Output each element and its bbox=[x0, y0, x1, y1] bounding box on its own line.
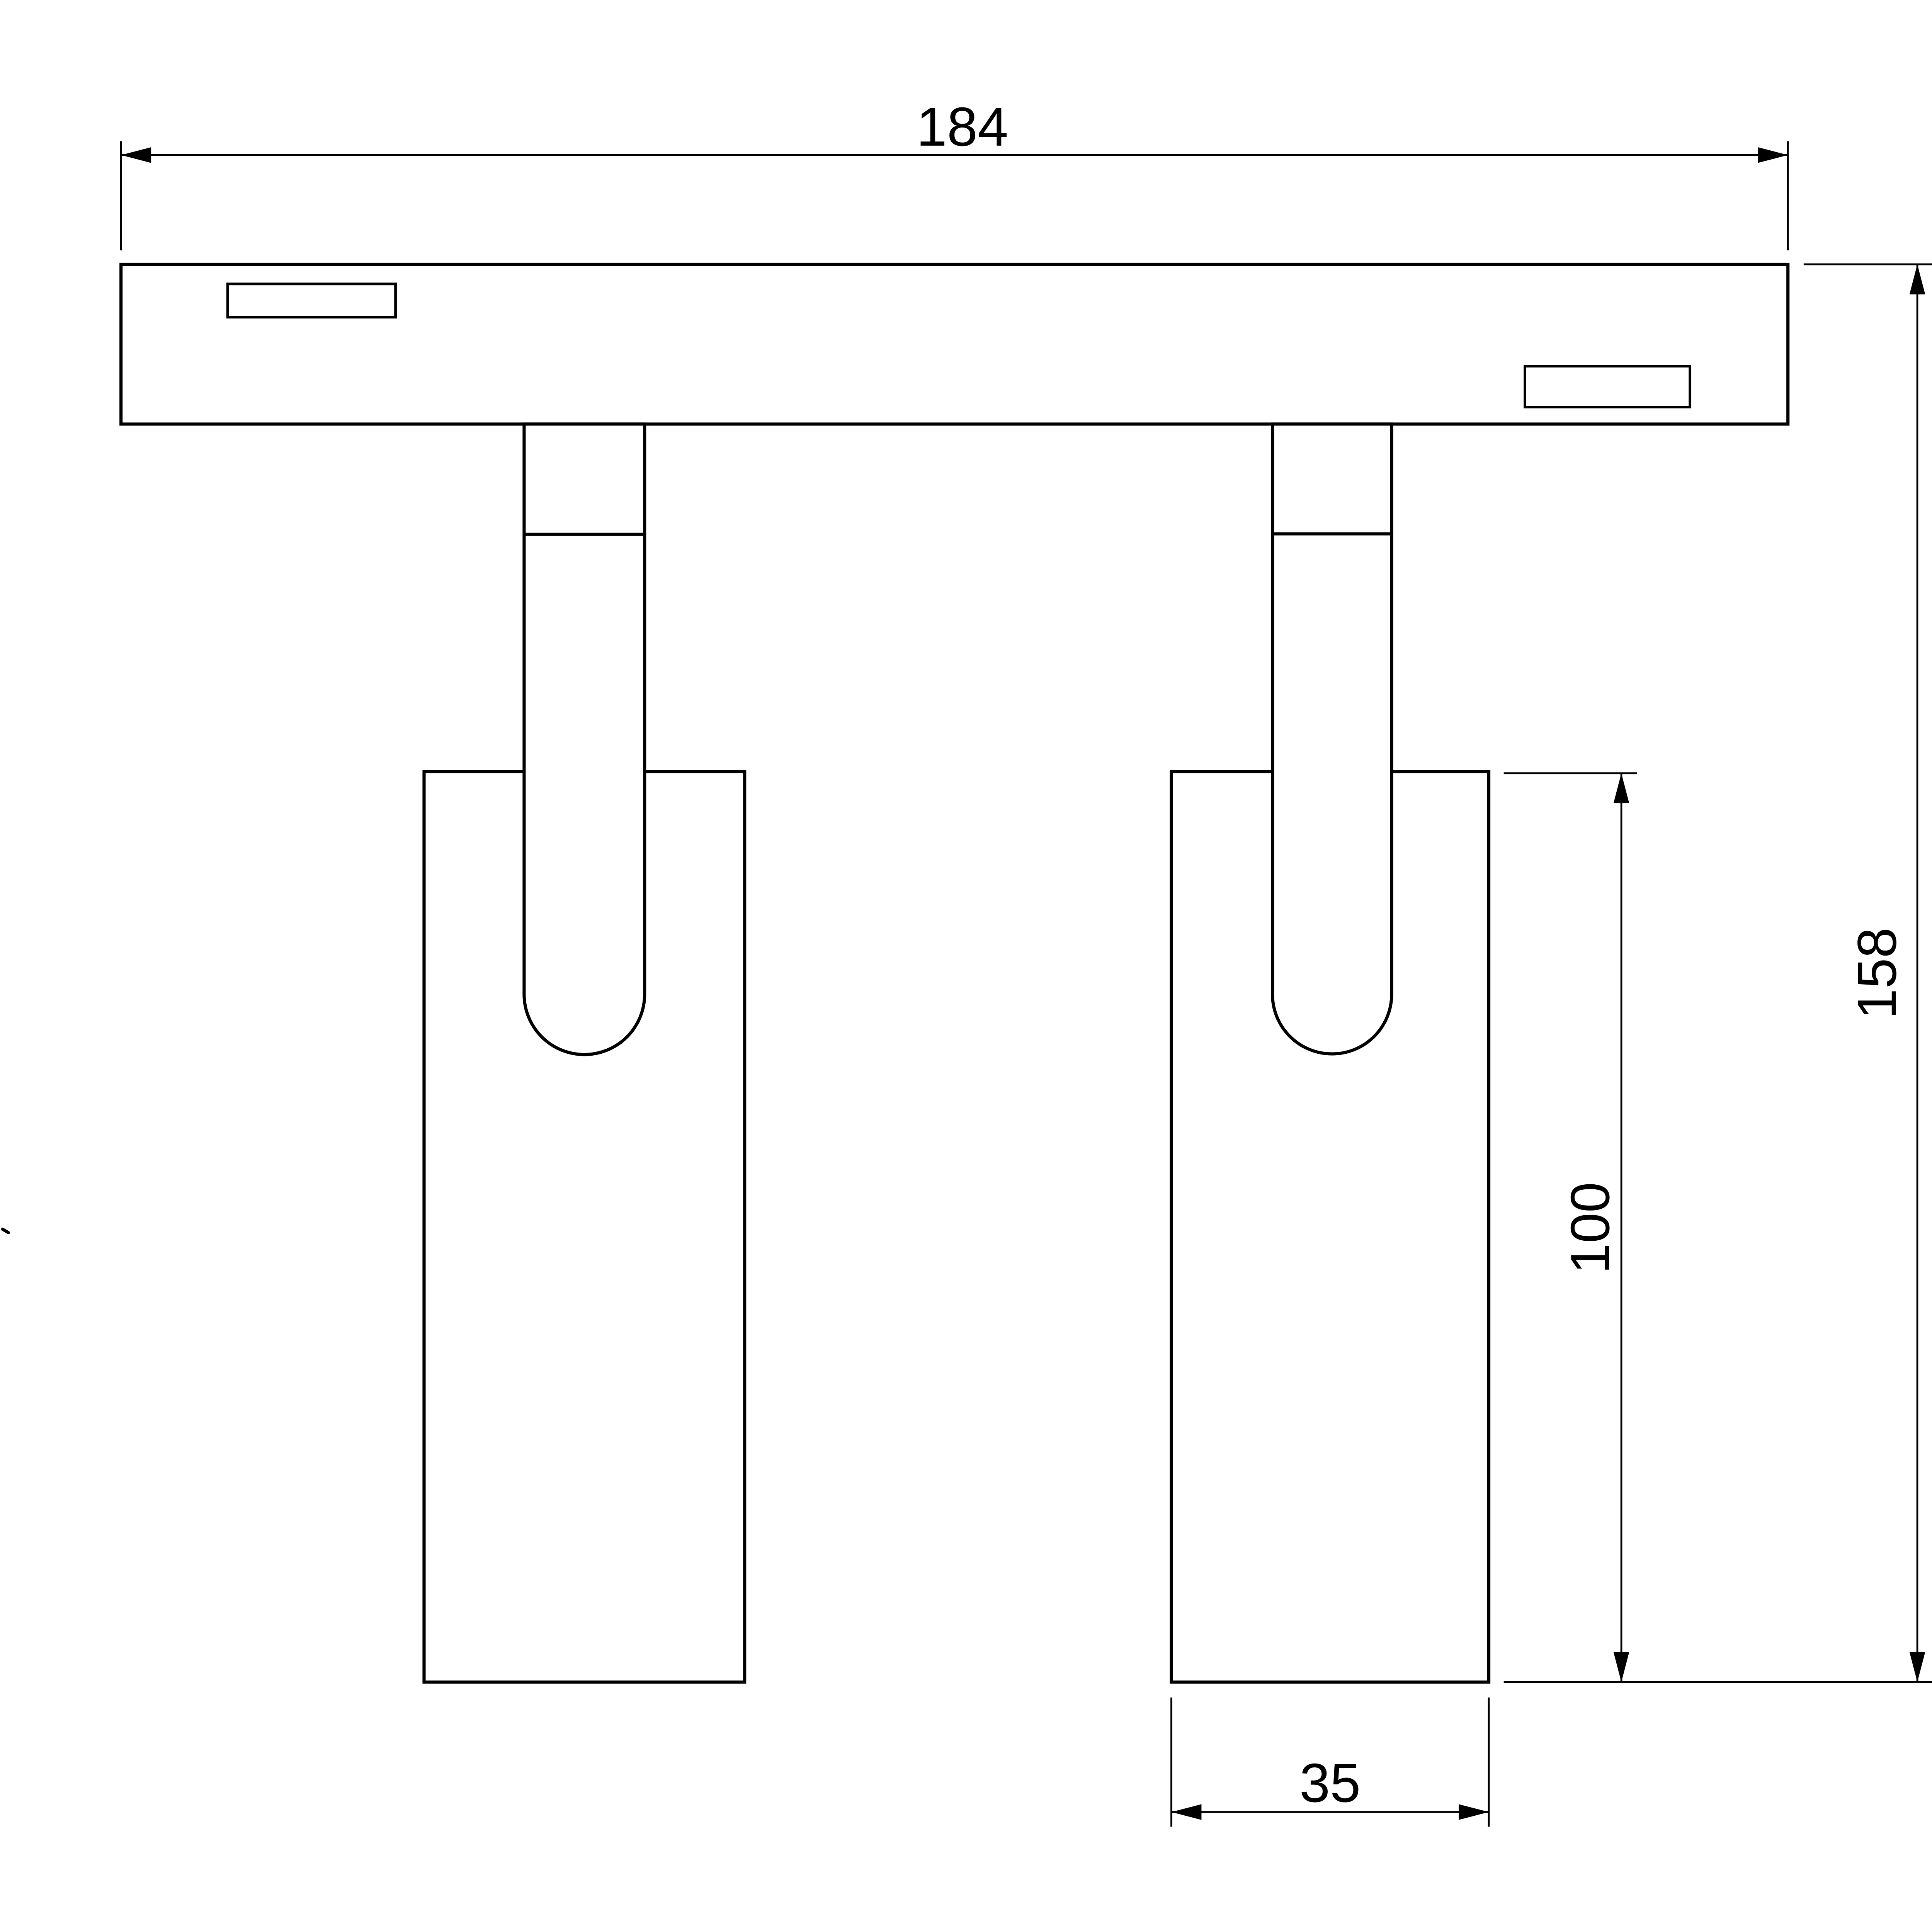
arrowhead-left-icon bbox=[1171, 1804, 1201, 1820]
stem-right bbox=[1272, 424, 1391, 1054]
arrowhead-down-icon bbox=[1910, 1652, 1925, 1682]
dimension-label-track-width: 184 bbox=[917, 96, 1009, 158]
dimension-head-length: 100 bbox=[1504, 773, 1637, 1682]
arrowhead-down-icon bbox=[1614, 1652, 1629, 1682]
dimension-head-width: 35 bbox=[1171, 1697, 1489, 1827]
technical-drawing-canvas: 184 158 100 3 bbox=[0, 0, 1932, 1932]
track-bar bbox=[121, 264, 1788, 424]
stray-mark bbox=[3, 1229, 9, 1233]
arrowhead-up-icon bbox=[1910, 264, 1925, 294]
track-bar-body bbox=[121, 264, 1788, 424]
dimension-label-head-length: 100 bbox=[1560, 1182, 1621, 1274]
arrowhead-right-icon bbox=[1758, 147, 1788, 163]
dimension-track-width: 184 bbox=[121, 96, 1788, 250]
stem-left bbox=[524, 424, 645, 1054]
dimension-overall-height: 158 bbox=[1504, 264, 1932, 1682]
arrowhead-left-icon bbox=[121, 147, 151, 163]
dimension-label-head-width: 35 bbox=[1299, 1752, 1361, 1814]
arrowhead-up-icon bbox=[1614, 773, 1629, 803]
arrowhead-right-icon bbox=[1459, 1804, 1489, 1820]
dimension-label-overall-height: 158 bbox=[1846, 927, 1908, 1019]
